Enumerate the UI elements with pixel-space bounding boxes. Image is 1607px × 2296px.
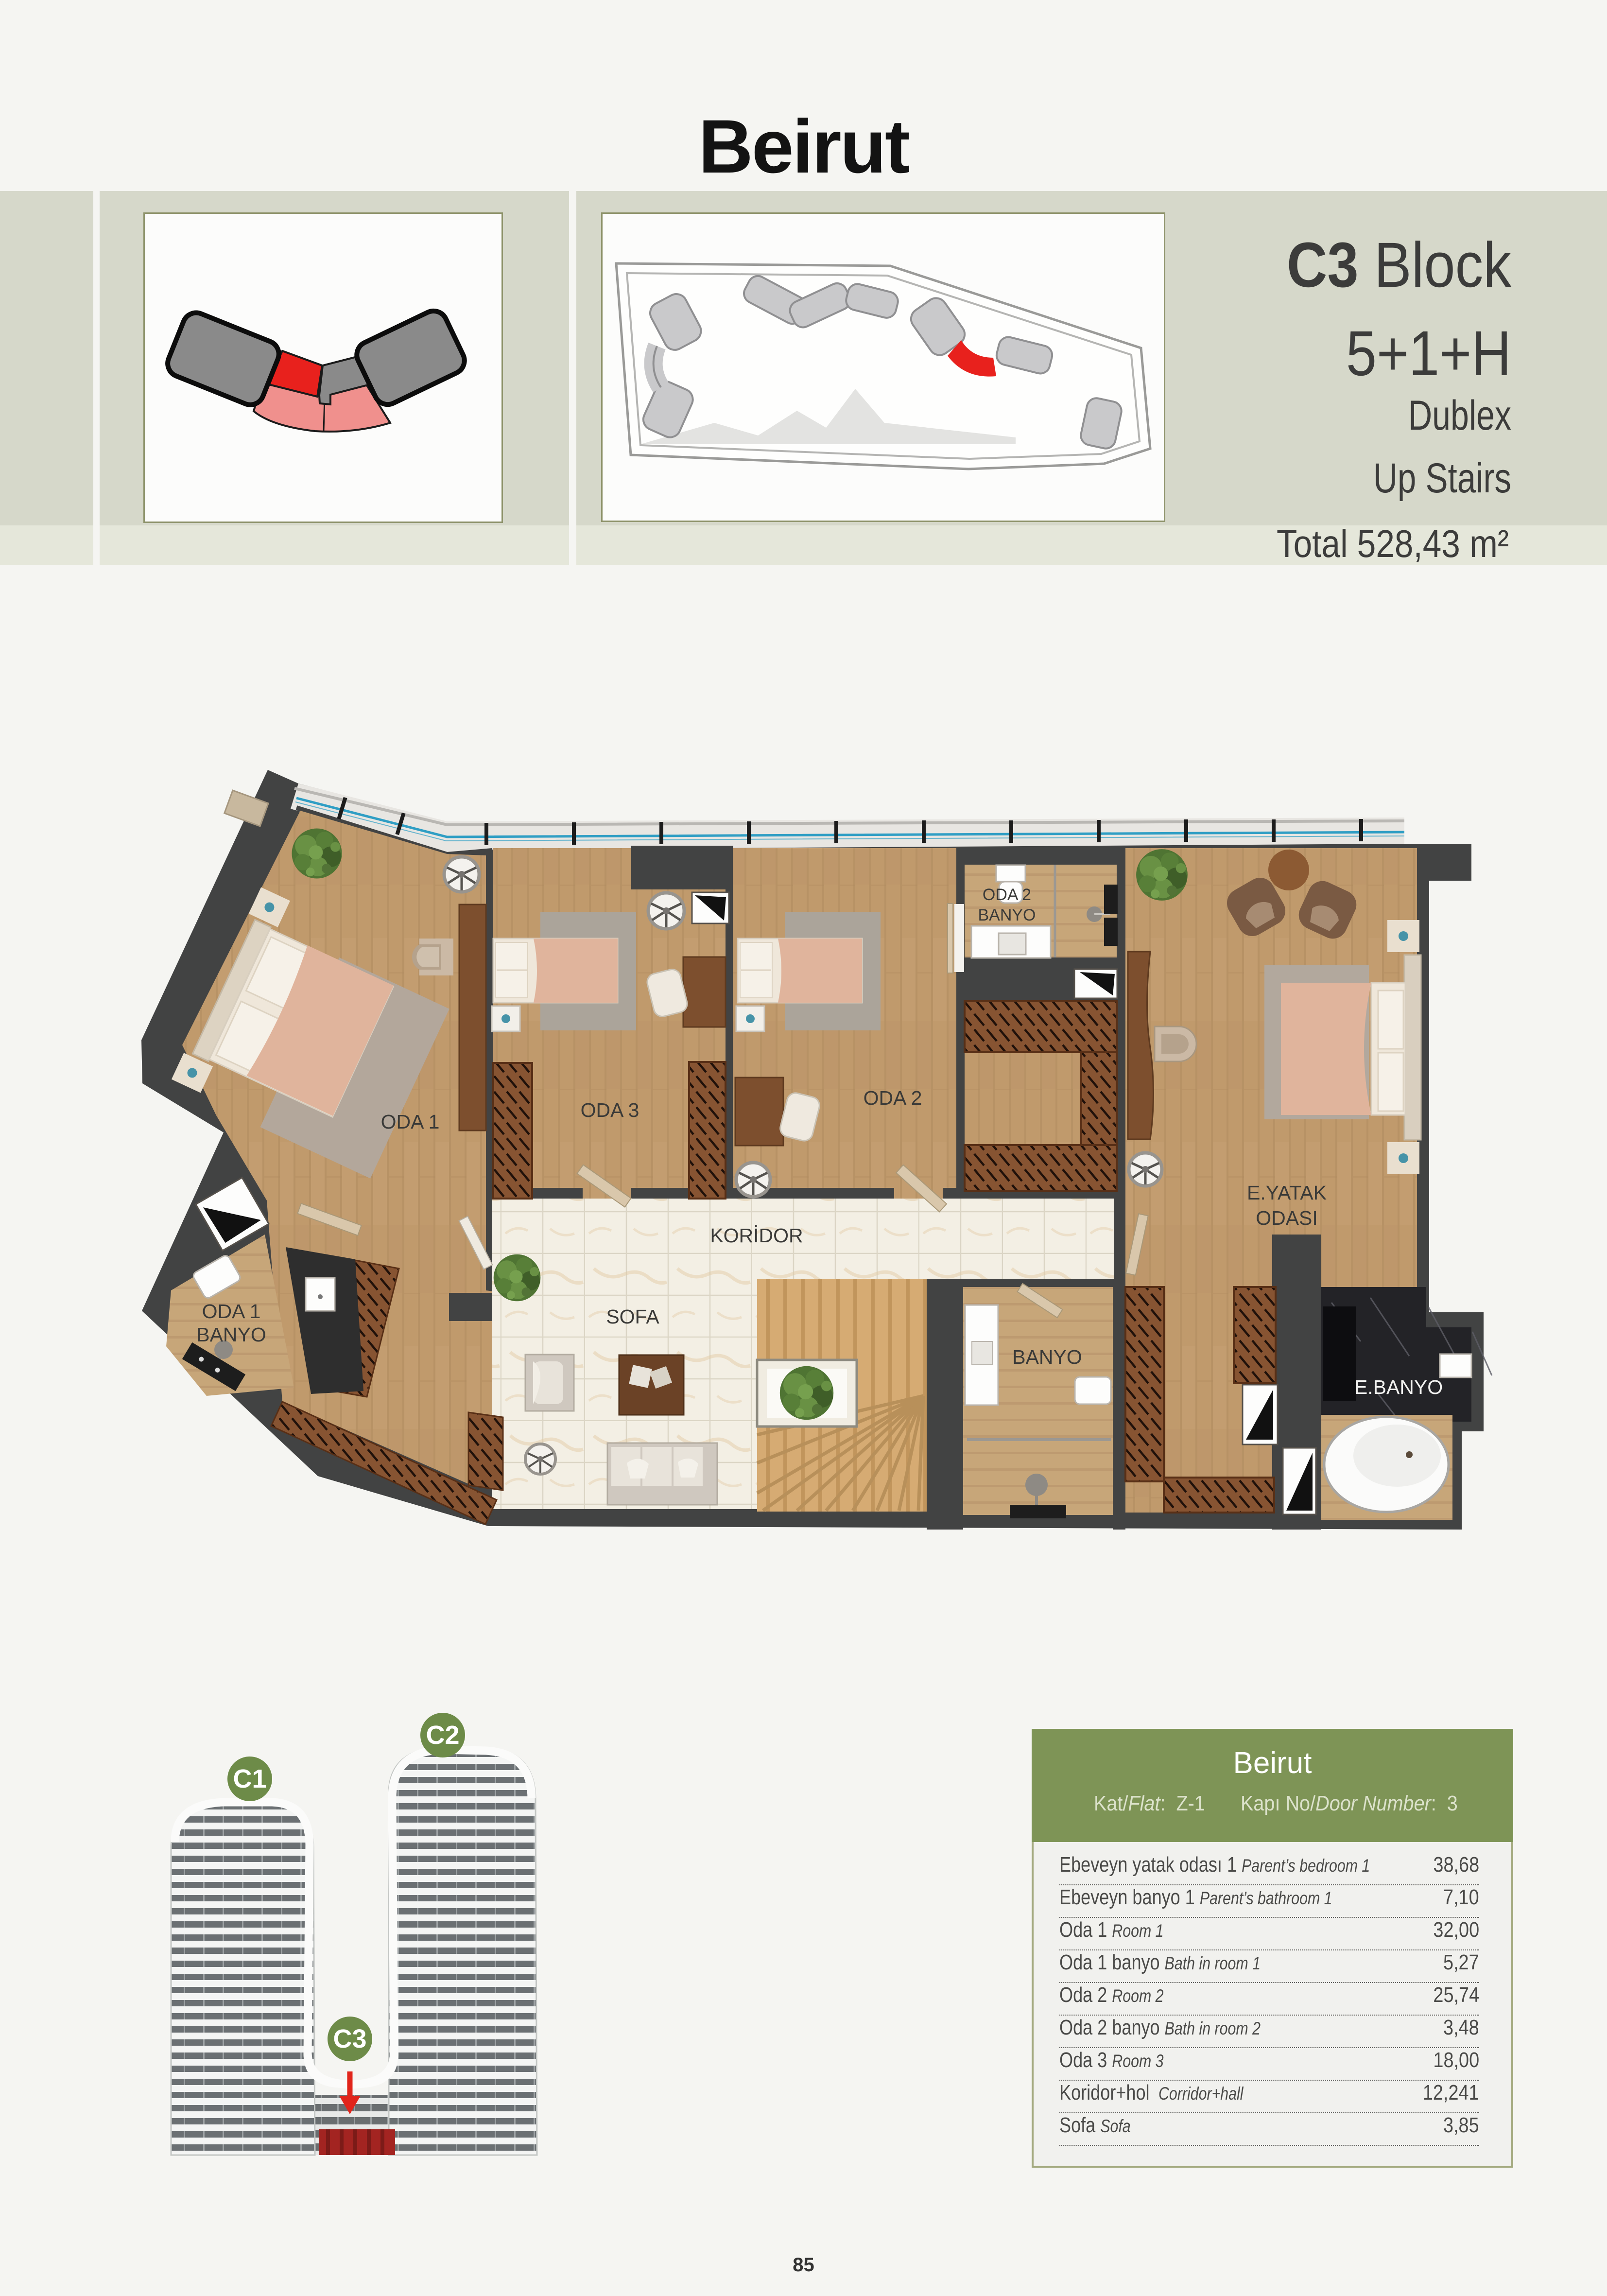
svg-text:ODA 1: ODA 1	[381, 1111, 440, 1133]
svg-text:BANYO: BANYO	[978, 906, 1036, 924]
svg-text:ODA 2: ODA 2	[864, 1087, 922, 1109]
svg-text:BANYO: BANYO	[196, 1323, 266, 1346]
svg-text:C2: C2	[426, 1721, 459, 1750]
svg-text:E.BANYO: E.BANYO	[1354, 1376, 1443, 1398]
svg-text:BANYO: BANYO	[1012, 1346, 1082, 1368]
svg-text:ODA 3: ODA 3	[581, 1099, 639, 1121]
svg-text:C3: C3	[333, 2024, 366, 2053]
svg-text:SOFA: SOFA	[606, 1305, 659, 1328]
svg-text:E.YATAK: E.YATAK	[1247, 1182, 1327, 1204]
svg-text:ODA 2: ODA 2	[983, 886, 1031, 904]
svg-text:ODASI: ODASI	[1256, 1207, 1318, 1229]
svg-text:KORİDOR: KORİDOR	[710, 1224, 803, 1247]
svg-text:ODA 1: ODA 1	[202, 1300, 261, 1322]
svg-text:C1: C1	[233, 1764, 266, 1793]
